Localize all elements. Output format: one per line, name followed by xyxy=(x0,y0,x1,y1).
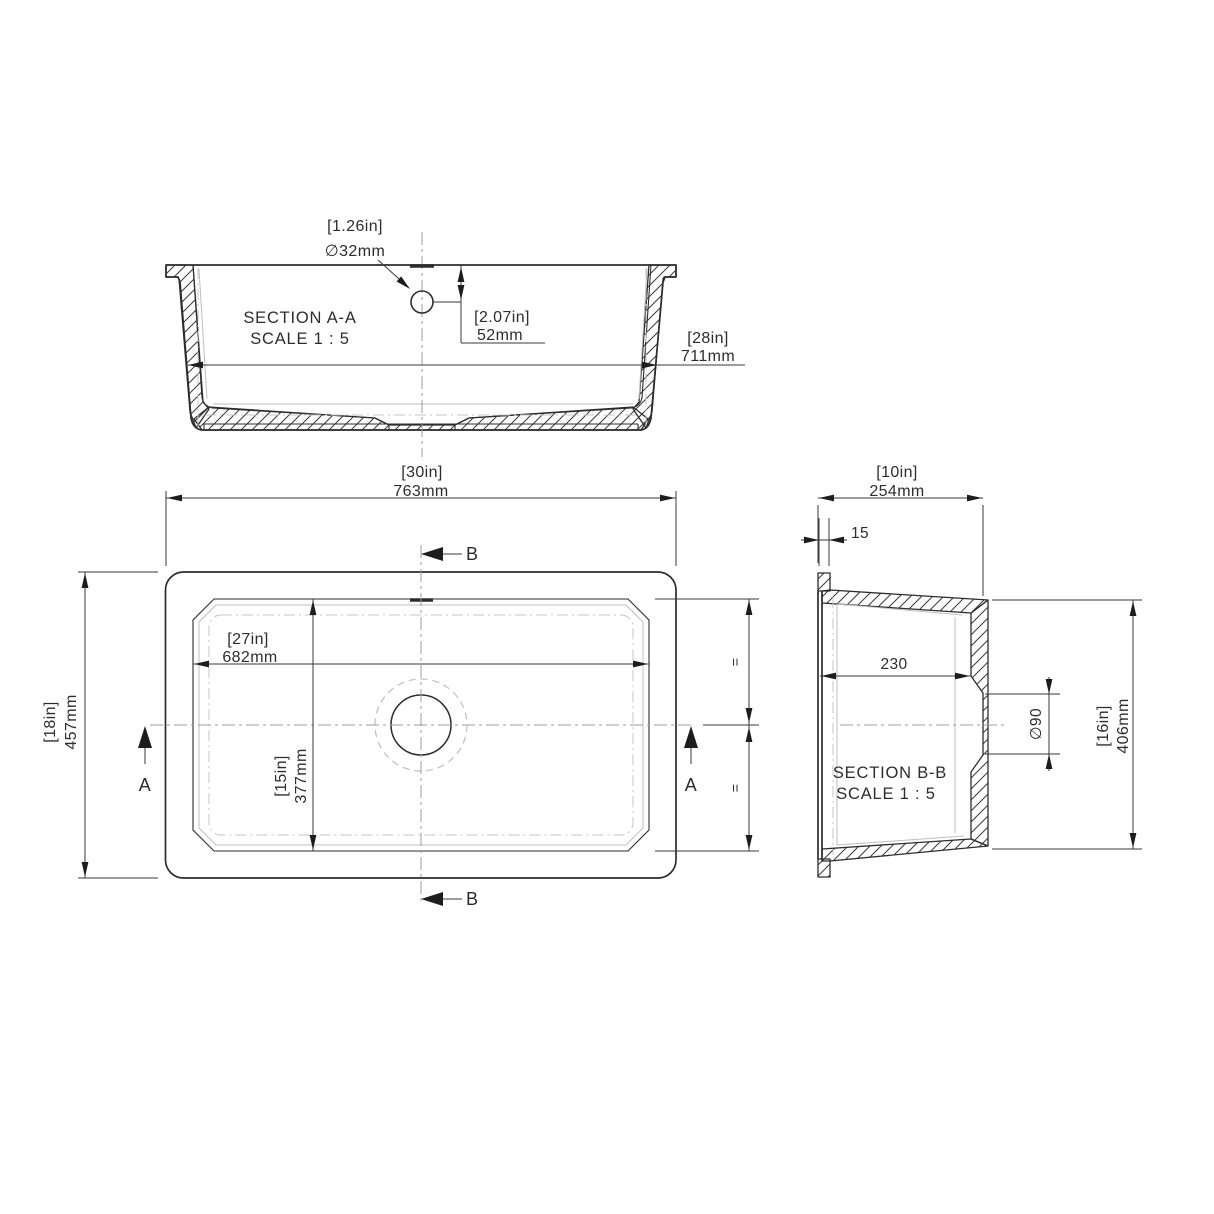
dim-bb-width: [10in] 254mm xyxy=(818,464,983,596)
hole-dia-mm: ∅32mm xyxy=(325,243,385,260)
dim-hole-offset: [2.07in] 52mm xyxy=(433,265,545,344)
basin-inner-value: 230 xyxy=(880,656,907,673)
rim-width-inches: [28in] xyxy=(687,330,729,347)
overall-depth-inches: [18in] xyxy=(42,701,59,743)
cut-label-a-left: A xyxy=(139,775,151,795)
equal-mark-bottom: = xyxy=(727,784,743,793)
bb-width-mm: 254mm xyxy=(869,483,924,500)
hole-offset-inches: [2.07in] xyxy=(474,309,530,326)
overall-width-inches: [30in] xyxy=(401,464,443,481)
cut-arrow-a-left: A xyxy=(138,726,152,795)
section-bb-scale: SCALE 1 : 5 xyxy=(836,785,936,803)
basin-width-mm: 682mm xyxy=(222,649,277,666)
sink-drawing-svg: [1.26in] ∅32mm [2.07in] 52mm [28in] 711m… xyxy=(0,0,1214,1214)
section-bb-title: SECTION B-B xyxy=(833,764,947,782)
engineering-drawing-page: [1.26in] ∅32mm [2.07in] 52mm [28in] 711m… xyxy=(0,0,1214,1214)
equal-mark-top: = xyxy=(727,658,743,667)
section-aa-outer-profile xyxy=(166,265,676,430)
section-bb-rim-edge xyxy=(818,591,822,859)
basin-depth-inches: [15in] xyxy=(273,755,290,797)
basin-depth-mm: 377mm xyxy=(293,748,310,803)
bb-height-mm: 406mm xyxy=(1115,698,1132,753)
dim-hole-diameter: [1.26in] ∅32mm xyxy=(325,218,412,292)
drain-diameter-value: ∅90 xyxy=(1028,708,1045,740)
dim-basin-inner: 230 xyxy=(820,656,971,679)
cut-label-b-bottom: B xyxy=(466,889,478,909)
cut-label-b-top: B xyxy=(466,544,478,564)
rim-thickness-value: 15 xyxy=(851,525,869,542)
cut-label-a-right: A xyxy=(685,775,697,795)
section-aa-scale: SCALE 1 : 5 xyxy=(250,330,350,348)
section-bb-view: [10in] 254mm 15 230 ∅90 [1 xyxy=(801,464,1142,877)
section-aa-view: [1.26in] ∅32mm [2.07in] 52mm [28in] 711m… xyxy=(166,218,745,457)
basin-width-inches: [27in] xyxy=(227,631,269,648)
rim-width-mm: 711mm xyxy=(681,348,735,365)
hole-offset-mm: 52mm xyxy=(477,327,523,344)
dim-drain-diameter: ∅90 xyxy=(985,677,1060,771)
overall-width-mm: 763mm xyxy=(393,483,448,500)
dim-bb-height: [16in] 406mm xyxy=(992,600,1142,849)
bb-width-inches: [10in] xyxy=(876,464,918,481)
dim-rim-thickness: 15 xyxy=(801,518,869,566)
dim-overall-depth: [18in] 457mm xyxy=(42,572,158,878)
cut-arrow-b-bottom: B xyxy=(421,889,478,909)
overall-depth-mm: 457mm xyxy=(63,694,80,749)
dim-equal-spacing: = = xyxy=(655,599,759,851)
section-bb-hidden-lines xyxy=(833,597,964,855)
bb-height-inches: [16in] xyxy=(1095,705,1112,747)
section-aa-title: SECTION A-A xyxy=(243,309,356,327)
section-aa-hatching xyxy=(166,265,676,430)
cut-arrow-b-top: B xyxy=(421,544,478,564)
cut-arrow-a-right: A xyxy=(684,726,698,795)
hole-dia-inches: [1.26in] xyxy=(327,218,383,235)
plan-view: [30in] 763mm [18in] 457mm [27in] 682mm [… xyxy=(42,464,759,909)
